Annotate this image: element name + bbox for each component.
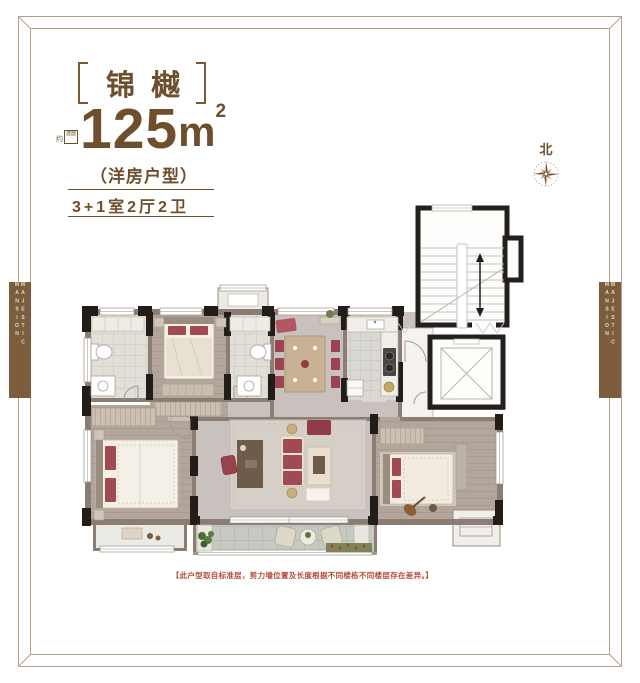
armchair-icon	[221, 455, 238, 475]
area-badge-icon: 建面	[64, 130, 78, 144]
area-meta: 约 建面	[56, 130, 78, 144]
right-banner-text: MAJESTIC MANSION	[604, 282, 616, 398]
disclaimer-text: 【此户型取自标准层，剪力墙位置及长度根据不同楼栋不同楼层存在差异。】	[80, 570, 525, 581]
vanity-icon	[91, 376, 115, 396]
compass-north-label: 北	[532, 139, 560, 158]
left-banner: MAJESTIC MANSION	[9, 282, 31, 398]
product-type-label: （洋房户型）	[90, 162, 198, 187]
elevator	[430, 337, 503, 407]
floor-plan	[80, 190, 525, 565]
living-room-furniture	[221, 420, 366, 510]
compass: 北	[532, 139, 560, 193]
wardrobe-icon	[380, 428, 424, 444]
area-value: 125	[80, 107, 178, 151]
area-exponent: 2	[215, 101, 226, 123]
area-prefix-label: 约	[56, 134, 63, 144]
patio-chair-icon	[274, 525, 297, 548]
stairs	[418, 205, 521, 331]
area-block: 约 建面 125 m 2	[56, 101, 226, 151]
bracket-right-icon	[196, 62, 206, 104]
plant-icon	[326, 310, 334, 318]
poster-canvas: MAJESTIC MANSION MAJESTIC MANSION 锦樾 约 建…	[0, 0, 640, 683]
compass-rose-icon	[532, 160, 560, 188]
left-banner-text: MAJESTIC MANSION	[14, 282, 26, 398]
bench-icon	[275, 318, 297, 334]
vanity-icon	[237, 376, 261, 396]
wardrobe-icon	[92, 408, 156, 426]
area-unit: m	[178, 113, 215, 151]
window-bench-icon	[456, 444, 467, 490]
right-banner: MAJESTIC MANSION	[599, 282, 621, 398]
